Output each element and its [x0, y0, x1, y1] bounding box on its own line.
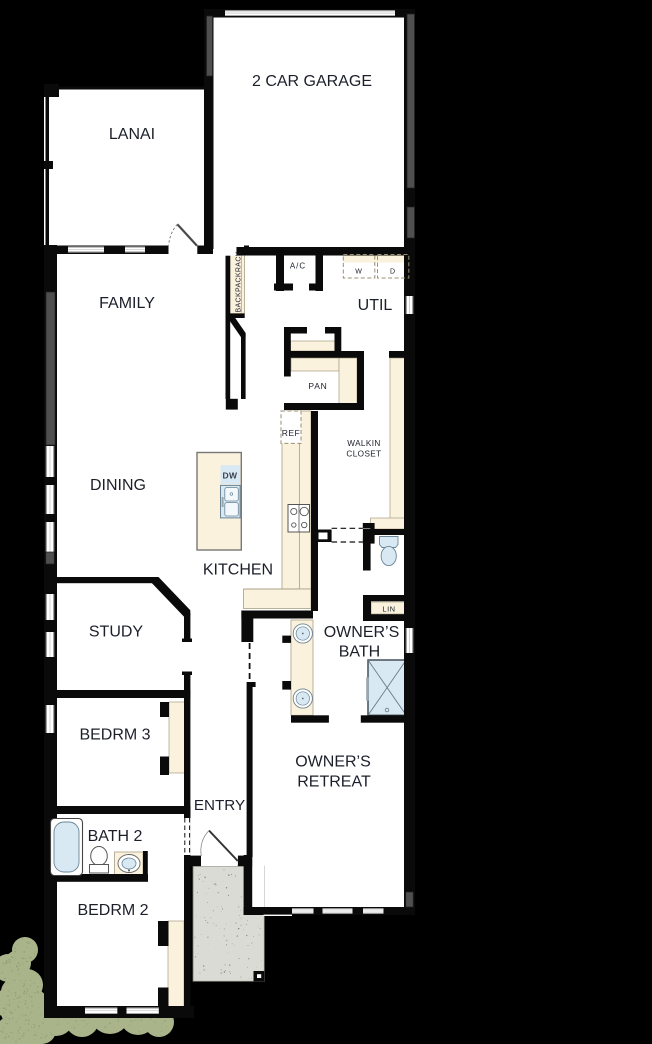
svg-text:STUDY: STUDY — [89, 624, 144, 641]
svg-text:RETREAT: RETREAT — [297, 774, 371, 791]
svg-text:PAN: PAN — [308, 381, 327, 391]
svg-text:DINING: DINING — [90, 477, 146, 494]
svg-text:BATH: BATH — [339, 644, 380, 661]
svg-text:KITCHEN: KITCHEN — [203, 562, 273, 579]
svg-text:OWNER’S: OWNER’S — [295, 754, 371, 771]
svg-text:OWNER’S: OWNER’S — [324, 624, 400, 641]
svg-text:LANAI: LANAI — [109, 126, 155, 143]
svg-text:A/C: A/C — [290, 262, 306, 271]
svg-text:ENTRY: ENTRY — [194, 797, 245, 814]
svg-text:CLOSET: CLOSET — [346, 450, 381, 459]
svg-text:BACKPACKRACK: BACKPACKRACK — [235, 251, 242, 312]
svg-text:BEDRM 3: BEDRM 3 — [79, 727, 150, 744]
svg-text:BEDRM 2: BEDRM 2 — [77, 902, 148, 919]
svg-text:LIN: LIN — [382, 605, 395, 614]
svg-text:D: D — [390, 269, 395, 276]
svg-text:REF: REF — [282, 428, 301, 438]
svg-text:BATH 2: BATH 2 — [88, 828, 143, 845]
svg-text:DW: DW — [223, 471, 238, 481]
svg-text:W: W — [355, 269, 362, 276]
svg-text:UTIL: UTIL — [358, 297, 393, 314]
svg-text:WALKIN: WALKIN — [347, 439, 381, 448]
svg-text:2 CAR GARAGE: 2 CAR GARAGE — [252, 73, 372, 90]
svg-text:FAMILY: FAMILY — [99, 295, 155, 312]
